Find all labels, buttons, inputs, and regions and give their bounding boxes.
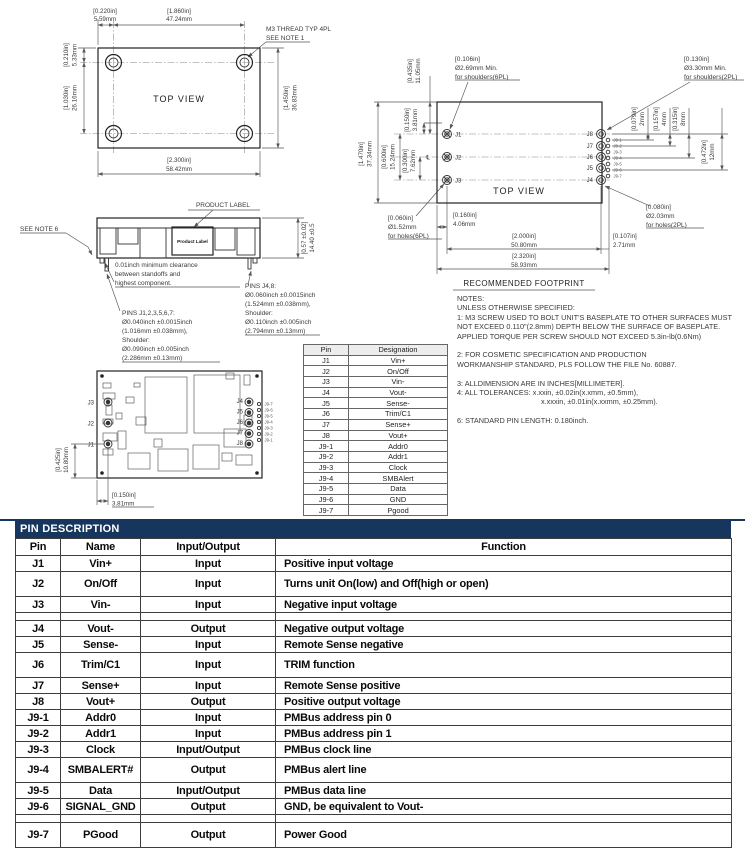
cell-pin: J7 bbox=[16, 678, 61, 694]
column-header-designation: Designation bbox=[349, 345, 448, 356]
notes-block: NOTES: UNLESS OTHERWISE SPECIFIED: 1: M3… bbox=[457, 294, 745, 426]
dim-label: 3.81mm bbox=[412, 109, 419, 131]
pins-spec: Ø0.090inch ±0.005inch bbox=[122, 346, 189, 353]
pcb-bottom-view-drawing: J3 J2 J1 J4 J5 J6 J7 J8 J9-7 J9-6 J9-5 J… bbox=[8, 353, 308, 523]
cell-function: TRIM function bbox=[276, 653, 732, 678]
callout: [0.080in] bbox=[646, 204, 671, 211]
pin-label: J1 bbox=[455, 133, 462, 139]
cell-pin: J7 bbox=[304, 419, 349, 430]
cell-io: Input/Output bbox=[141, 783, 276, 799]
dim-label: [0.425in] bbox=[55, 448, 62, 472]
cell-pin: J2 bbox=[304, 366, 349, 377]
dim-label: 5.59mm bbox=[94, 16, 116, 23]
cell-name: On/Off bbox=[61, 572, 141, 597]
dim-label: [2.320in] bbox=[512, 253, 536, 260]
table-row: J6Trim/C1 bbox=[304, 409, 448, 420]
callout: [0.106in] bbox=[455, 56, 480, 63]
cell-pin: J8 bbox=[16, 694, 61, 710]
cell-designation: Sense- bbox=[349, 398, 448, 409]
pin-label: J6 bbox=[237, 420, 244, 426]
cell-designation: Vout+ bbox=[349, 430, 448, 441]
dim-label: [1.450in] bbox=[283, 86, 290, 110]
product-label: Product Label bbox=[177, 239, 208, 244]
pin-label: J9-5 bbox=[265, 414, 274, 419]
table-row: J9-2Addr1 bbox=[304, 451, 448, 462]
table-row: J6Trim/C1InputTRIM function bbox=[16, 653, 732, 678]
pin-label: J3 bbox=[455, 179, 462, 185]
cell-function: PMBus clock line bbox=[276, 742, 732, 758]
spacer-row bbox=[16, 613, 732, 621]
callout: [0.130in] bbox=[684, 56, 709, 63]
pin-label: J8 bbox=[237, 441, 244, 447]
table-row: J2On/Off bbox=[304, 366, 448, 377]
table-row: J5Sense-InputRemote Sense negative bbox=[16, 637, 732, 653]
table-header-row: Pin Name Input/Output Function bbox=[16, 539, 732, 556]
note-line: NOT EXCEED 0.110"(2.8mm) DEPTH BELOW THE… bbox=[457, 322, 745, 331]
cell-io: Output bbox=[141, 694, 276, 710]
view-title: TOP VIEW bbox=[153, 94, 205, 104]
note-line: APPLIED TORQUE PER SCREW SHOULD NOT EXCE… bbox=[457, 332, 745, 341]
dim-label: 4mm bbox=[661, 112, 668, 126]
pin-label: J3 bbox=[88, 401, 95, 407]
pin-label: J1 bbox=[88, 443, 95, 449]
cell-pin: J9-7 bbox=[16, 823, 61, 848]
dim-label: 8mm bbox=[680, 112, 687, 126]
dim-label: 50.80mm bbox=[511, 242, 537, 249]
cell-function: Remote Sense negative bbox=[276, 637, 732, 653]
pin-label: J9-6 bbox=[265, 408, 274, 413]
clearance-note: highest component. bbox=[115, 280, 172, 287]
dim-label: [1.860in] bbox=[167, 8, 191, 15]
cell-function: PMBus address pin 1 bbox=[276, 726, 732, 742]
dim-label: [2.300in] bbox=[167, 157, 191, 164]
cell-designation: Clock bbox=[349, 462, 448, 473]
callout: Ø1.52mm bbox=[388, 224, 417, 231]
pin-label: J9-7 bbox=[614, 174, 623, 179]
cell-pin: J9-2 bbox=[304, 451, 349, 462]
table-row: J9-5DataInput/OutputPMBus data line bbox=[16, 783, 732, 799]
cell-pin: J5 bbox=[16, 637, 61, 653]
dim-label: 11.05mm bbox=[415, 58, 422, 83]
table-header-row: Pin Designation bbox=[304, 345, 448, 356]
note-line: 3: ALLDIMENSION ARE IN INCHES[MILLIMETER… bbox=[457, 379, 745, 388]
dim-label: 47.24mm bbox=[166, 16, 192, 23]
cell-pin: J6 bbox=[16, 653, 61, 678]
pin-label: J9-4 bbox=[614, 156, 623, 161]
pin-label: J4 bbox=[587, 178, 594, 184]
pins-spec: Shoulder: bbox=[122, 337, 150, 344]
note-line: x.xxxin, ±0.01in(x.xxmm, ±0.25mm). bbox=[457, 397, 745, 406]
pins-spec: (2.794mm ±0.13mm) bbox=[245, 328, 305, 335]
pin-label: J5 bbox=[237, 410, 244, 416]
table-row: J9-7PGoodOutputPower Good bbox=[16, 823, 732, 848]
table-row: J1Vin+InputPositive input voltage bbox=[16, 556, 732, 572]
components bbox=[103, 373, 252, 471]
cell-function: Negative output voltage bbox=[276, 621, 732, 637]
cell-pin: J3 bbox=[304, 377, 349, 388]
column-header-name: Name bbox=[61, 539, 141, 556]
cell-designation: Trim/C1 bbox=[349, 409, 448, 420]
cell-io: Input bbox=[141, 726, 276, 742]
cell-designation: Vout- bbox=[349, 387, 448, 398]
cell-io: Input bbox=[141, 556, 276, 572]
dim-label: 37.34mm bbox=[367, 141, 374, 167]
dim-label: [0.079in] bbox=[631, 107, 638, 131]
pins-spec: Ø0.060inch ±0.0015inch bbox=[245, 292, 316, 299]
table-row: J5Sense- bbox=[304, 398, 448, 409]
cell-pin: J4 bbox=[16, 621, 61, 637]
dim-label: [1.030in] bbox=[63, 86, 70, 110]
pin-label: J9-5 bbox=[614, 162, 623, 167]
dim-label: 14.40 ±0.5 bbox=[309, 223, 316, 253]
dim-label: [0.107in] bbox=[613, 233, 637, 240]
pins-spec: (1.524mm ±0.038mm), bbox=[245, 301, 311, 308]
cell-io: Input bbox=[141, 710, 276, 726]
cell-designation: Addr0 bbox=[349, 441, 448, 452]
dim-label: 2mm bbox=[639, 112, 646, 126]
cell-function: Positive output voltage bbox=[276, 694, 732, 710]
column-header-pin: Pin bbox=[16, 539, 61, 556]
dim-label: [0.600in] bbox=[381, 145, 388, 169]
pins-spec: Ø0.110inch ±0.005inch bbox=[245, 319, 312, 326]
cell-pin: J6 bbox=[304, 409, 349, 420]
pin-label: J9-3 bbox=[265, 426, 274, 431]
note-line: 1: M3 SCREW USED TO BOLT UNIT'S BASEPLAT… bbox=[457, 313, 745, 322]
cell-name: Addr1 bbox=[61, 726, 141, 742]
dim-label: [0.57 ±0.02] bbox=[301, 221, 308, 254]
cell-io: Input bbox=[141, 678, 276, 694]
table-row: J1Vin+ bbox=[304, 355, 448, 366]
product-label-callout: PRODUCT LABEL bbox=[196, 202, 250, 209]
cell-function: PMBus address pin 0 bbox=[276, 710, 732, 726]
table-row: J9-3ClockInput/OutputPMBus clock line bbox=[16, 742, 732, 758]
table-row: J7Sense+ bbox=[304, 419, 448, 430]
column-header-io: Input/Output bbox=[141, 539, 276, 556]
dim-label: [0.315in] bbox=[672, 107, 679, 131]
table-row: J3Vin- bbox=[304, 377, 448, 388]
pin-label: J7 bbox=[587, 144, 594, 150]
cell-function: Positive input voltage bbox=[276, 556, 732, 572]
dim-label: [0.435in] bbox=[407, 59, 414, 83]
cell-io: Output bbox=[141, 621, 276, 637]
cell-function: Remote Sense positive bbox=[276, 678, 732, 694]
pin-label: J4 bbox=[237, 399, 244, 405]
cell-designation: GND bbox=[349, 494, 448, 505]
pin-description-section: PIN DESCRIPTION Pin Name Input/Output Fu… bbox=[15, 521, 731, 848]
cell-function: GND, be equivalent to Vout- bbox=[276, 799, 732, 815]
pin-label: J9-2 bbox=[265, 432, 274, 437]
cell-io: Input/Output bbox=[141, 742, 276, 758]
dimension-lines bbox=[374, 76, 744, 290]
pin-label: J9-2 bbox=[614, 144, 623, 149]
table-row: J8Vout+OutputPositive output voltage bbox=[16, 694, 732, 710]
cell-pin: J2 bbox=[16, 572, 61, 597]
callout: Ø3.30mm Min. bbox=[684, 65, 727, 72]
table-row: J9-7Pgood bbox=[304, 505, 448, 516]
table-row: J2On/OffInputTurns unit On(low) and Off(… bbox=[16, 572, 732, 597]
dim-label: 2.71mm bbox=[613, 242, 635, 249]
dim-label: 7.62mm bbox=[410, 150, 417, 172]
table-row: J8Vout+ bbox=[304, 430, 448, 441]
note-line: UNLESS OTHERWISE SPECIFIED: bbox=[457, 303, 745, 312]
cell-pin: J9-7 bbox=[304, 505, 349, 516]
cell-name: Vin- bbox=[61, 597, 141, 613]
dim-label: [2.000in] bbox=[512, 233, 536, 240]
table-row: J4Vout- bbox=[304, 387, 448, 398]
section-title-bar: PIN DESCRIPTION bbox=[15, 521, 731, 538]
cell-designation: SMBAlert bbox=[349, 473, 448, 484]
pins-spec: PINS J4,8: bbox=[245, 283, 276, 290]
table-row: J9-2Addr1InputPMBus address pin 1 bbox=[16, 726, 732, 742]
dim-label: 36.83mm bbox=[292, 85, 299, 111]
pin-label: J9-6 bbox=[614, 168, 623, 173]
callout: for holes(2PL) bbox=[646, 222, 687, 229]
cell-name: Addr0 bbox=[61, 710, 141, 726]
dim-label: 5.33mm bbox=[72, 44, 79, 66]
column-header-function: Function bbox=[276, 539, 732, 556]
table-row: J9-4SMBAlert bbox=[304, 473, 448, 484]
cell-designation: Addr1 bbox=[349, 451, 448, 462]
cell-pin: J9-1 bbox=[304, 441, 349, 452]
cell-name: SIGNAL_GND bbox=[61, 799, 141, 815]
drawing-caption: RECOMMENDED FOOTPRINT bbox=[463, 279, 584, 288]
cell-name: Data bbox=[61, 783, 141, 799]
callout: Ø2.69mm Min. bbox=[455, 65, 498, 72]
pin-label: J9-4 bbox=[265, 420, 274, 425]
pins-spec: PINS J1,2,3,5,6,7: bbox=[122, 310, 175, 317]
note-line bbox=[457, 407, 745, 416]
pin-label: J9-3 bbox=[614, 150, 623, 155]
dim-label: [0.472in] bbox=[701, 140, 708, 164]
cell-pin: J9-4 bbox=[16, 758, 61, 783]
note-line: WORKMANSHIP STANDARD, PLS FOLLOW THE FIL… bbox=[457, 360, 745, 369]
column-header-pin: Pin bbox=[304, 345, 349, 356]
thread-callout: SEE NOTE 1 bbox=[266, 35, 305, 42]
callout: for shoulders(2PL) bbox=[684, 74, 737, 81]
callout: Ø2.03mm bbox=[646, 213, 675, 220]
table-row: J9-3Clock bbox=[304, 462, 448, 473]
cell-designation: On/Off bbox=[349, 366, 448, 377]
cell-designation: Pgood bbox=[349, 505, 448, 516]
view-title: TOP VIEW bbox=[493, 186, 545, 196]
cell-function: Power Good bbox=[276, 823, 732, 848]
pin-label: J6 bbox=[587, 155, 594, 161]
dim-label: [0.160in] bbox=[453, 212, 477, 219]
dim-label: 3.81mm bbox=[112, 501, 134, 508]
dim-label: 15.24mm bbox=[390, 144, 397, 170]
top-view-drawing: [0.220in] 5.59mm [1.860in] 47.24mm M3 TH… bbox=[48, 3, 348, 198]
cell-pin: J9-5 bbox=[304, 483, 349, 494]
cell-pin: J1 bbox=[304, 355, 349, 366]
side-view-drawing: PRODUCT LABEL Product Label SEE NOTE 6 [… bbox=[8, 195, 338, 373]
pin-label: J7 bbox=[237, 431, 244, 437]
cell-pin: J1 bbox=[16, 556, 61, 572]
callout: for holes(6PL) bbox=[388, 233, 429, 240]
table-row: J9-5Data bbox=[304, 483, 448, 494]
cell-name: SMBALERT# bbox=[61, 758, 141, 783]
dim-label: [0.150in] bbox=[404, 108, 411, 132]
cell-pin: J3 bbox=[16, 597, 61, 613]
cell-function: PMBus data line bbox=[276, 783, 732, 799]
pins-spec: (1.016mm ±0.038mm), bbox=[122, 328, 188, 335]
cell-function: Turns unit On(low) and Off(high or open) bbox=[276, 572, 732, 597]
pin-label: J9-7 bbox=[265, 402, 274, 407]
note-line: 4: ALL TOLERANCES: x.xxin, ±0.02in(x.xmm… bbox=[457, 388, 745, 397]
dim-label: [0.150in] bbox=[112, 492, 136, 499]
cell-pin: J8 bbox=[304, 430, 349, 441]
cell-function: PMBus alert line bbox=[276, 758, 732, 783]
cell-pin: J9-5 bbox=[16, 783, 61, 799]
cell-designation: Sense+ bbox=[349, 419, 448, 430]
callout: [0.060in] bbox=[388, 215, 413, 222]
dim-label: 58.93mm bbox=[511, 262, 537, 269]
cell-name: Vout+ bbox=[61, 694, 141, 710]
cell-name: Sense+ bbox=[61, 678, 141, 694]
cell-designation: Vin+ bbox=[349, 355, 448, 366]
pin-description-table: Pin Name Input/Output Function J1Vin+Inp… bbox=[15, 538, 732, 848]
table-row: J7Sense+InputRemote Sense positive bbox=[16, 678, 732, 694]
dim-label: [0.157in] bbox=[653, 107, 660, 131]
cell-io: Input bbox=[141, 572, 276, 597]
cell-designation: Data bbox=[349, 483, 448, 494]
table-row: J9-1Addr0InputPMBus address pin 0 bbox=[16, 710, 732, 726]
note-line: NOTES: bbox=[457, 294, 745, 303]
dim-label: [0.210in] bbox=[63, 43, 70, 67]
cell-designation: Vin- bbox=[349, 377, 448, 388]
pin-label: J5 bbox=[587, 166, 594, 172]
cell-io: Output bbox=[141, 823, 276, 848]
clearance-note: between standoffs and bbox=[115, 271, 181, 278]
cell-pin: J9-6 bbox=[304, 494, 349, 505]
note-line: 2: FOR COSMETIC SPECIFICATION AND PRODUC… bbox=[457, 350, 745, 359]
table-row: J9-1Addr0 bbox=[304, 441, 448, 452]
cell-io: Input bbox=[141, 653, 276, 678]
cell-io: Input bbox=[141, 637, 276, 653]
cell-pin: J9-3 bbox=[16, 742, 61, 758]
pin-label: J9-1 bbox=[265, 438, 274, 443]
cell-function: Negative input voltage bbox=[276, 597, 732, 613]
cell-pin: J4 bbox=[304, 387, 349, 398]
callout: for shoulders(6PL) bbox=[455, 74, 508, 81]
corner-dots bbox=[100, 374, 259, 475]
dim-label: 4.06mm bbox=[453, 221, 475, 228]
pin-label: J8 bbox=[587, 132, 594, 138]
cell-pin: J9-4 bbox=[304, 473, 349, 484]
table-row: J4Vout-OutputNegative output voltage bbox=[16, 621, 732, 637]
cell-name: Vout- bbox=[61, 621, 141, 637]
pin-label: J2 bbox=[88, 422, 95, 428]
cell-io: Output bbox=[141, 758, 276, 783]
thread-callout: M3 THREAD TYP 4PL bbox=[266, 26, 331, 33]
cell-pin: J9-3 bbox=[304, 462, 349, 473]
clearance-note: 0.01inch minimum clearance bbox=[115, 262, 198, 269]
cell-pin: J9-6 bbox=[16, 799, 61, 815]
cell-name: PGood bbox=[61, 823, 141, 848]
pin-label: J2 bbox=[455, 156, 462, 162]
dim-label: 58.42mm bbox=[166, 166, 192, 173]
spacer-row bbox=[16, 815, 732, 823]
cell-io: Input bbox=[141, 597, 276, 613]
pins-spec: Ø0.040inch ±0.0015inch bbox=[122, 319, 193, 326]
see-note: SEE NOTE 6 bbox=[20, 226, 59, 233]
centerline-symbol: ℄ bbox=[425, 155, 430, 162]
dim-label: [0.220in] bbox=[93, 8, 117, 15]
dim-label: [1.470in] bbox=[358, 142, 365, 166]
note-line bbox=[457, 369, 745, 378]
cell-pin: J9-1 bbox=[16, 710, 61, 726]
cell-pin: J5 bbox=[304, 398, 349, 409]
dim-label: [0.300in] bbox=[402, 149, 409, 173]
cell-name: Vin+ bbox=[61, 556, 141, 572]
note-line: 6: STANDARD PIN LENGTH: 0.180inch. bbox=[457, 416, 745, 425]
pin-designation-table: Pin Designation J1Vin+ J2On/Off J3Vin- J… bbox=[303, 344, 448, 516]
dim-label: 12mm bbox=[709, 143, 716, 160]
cell-name: Sense- bbox=[61, 637, 141, 653]
table-row: J9-6SIGNAL_GNDOutputGND, be equivalent t… bbox=[16, 799, 732, 815]
footprint-drawing: J1 J2 J3 ℄ J8 J7 J6 J5 J4 J9-1 J9-2 J9-3… bbox=[358, 36, 745, 298]
dim-label: 10.80mm bbox=[63, 447, 70, 473]
table-row: J9-6GND bbox=[304, 494, 448, 505]
dim-label: 26.16mm bbox=[72, 85, 79, 111]
cell-name: Trim/C1 bbox=[61, 653, 141, 678]
note-line bbox=[457, 341, 745, 350]
cell-io: Output bbox=[141, 799, 276, 815]
pin-label: J9-1 bbox=[614, 138, 623, 143]
cell-name: Clock bbox=[61, 742, 141, 758]
table-row: J9-4SMBALERT#OutputPMBus alert line bbox=[16, 758, 732, 783]
cell-pin: J9-2 bbox=[16, 726, 61, 742]
pins-spec: Shoulder: bbox=[245, 310, 273, 317]
table-row: J3Vin-InputNegative input voltage bbox=[16, 597, 732, 613]
